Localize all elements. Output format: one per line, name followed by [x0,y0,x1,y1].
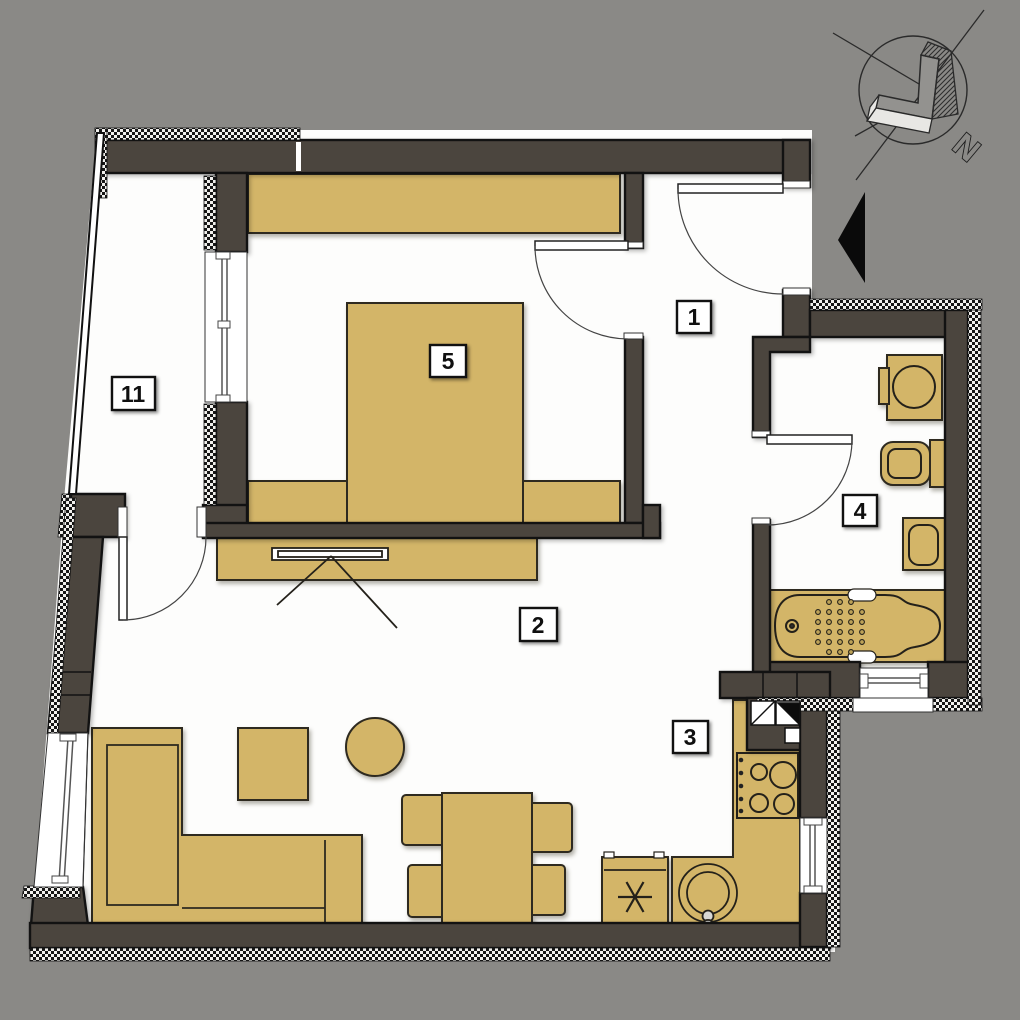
wall-kitchen-right-upper [800,698,827,818]
wall-kitchen-right-lower [800,893,827,947]
kitchen-window [800,818,827,893]
bathroom-window [853,668,933,712]
toilet-tank [930,440,945,487]
room-number: 4 [854,498,867,524]
bedroom-door-leaf [535,241,628,250]
wall-bedroom-right-upper [625,173,643,248]
wall-bottom [30,923,830,948]
room-number: 11 [121,381,146,407]
wall-bathroom-left-lower [753,520,770,672]
bathtub-grip [848,589,876,601]
wall-joint-slit [296,142,301,171]
nightstand-right [523,481,620,523]
wall-bedroom-bottom [203,523,660,538]
washing-machine [887,355,942,420]
room-label-hallway: 1 [677,301,711,333]
fridge-hinge [654,852,664,858]
room-label-living-room: 2 [520,608,557,641]
north-label: N [946,126,987,168]
floor-plan: 1 2 3 4 5 11 N [0,0,1020,1020]
nightstand-left [248,481,347,523]
floor-plan-canvas: 1 2 3 4 5 11 N [0,0,1020,1020]
living-room-window [34,733,88,887]
round-table [346,718,404,776]
wall-bedroom-right-lower [625,337,643,523]
bathroom-door-leaf [767,435,852,444]
wardrobe [248,174,620,233]
washer-drawer [879,368,889,404]
bedroom-window [205,252,247,402]
room-number: 5 [442,348,455,374]
wall-bathroom-right [945,310,968,700]
room-number: 2 [532,612,545,638]
double-bed [347,303,523,523]
room-number: 3 [684,724,697,750]
room-label-balcony: 11 [112,377,155,410]
room-number: 1 [688,304,701,330]
wall-top [100,140,810,173]
wall-balcony-bedroom-upper [216,173,247,252]
entrance-arrow-icon [838,192,865,283]
room-label-kitchen: 3 [673,721,708,753]
wall-kitchen-top [720,672,830,698]
entrance-door-leaf [678,184,783,193]
balcony-door-leaf [119,537,127,620]
room-label-bedroom: 5 [430,345,466,377]
wall-corner-block [643,505,660,538]
fridge-hinge [604,852,614,858]
fridge-freezer [602,857,668,925]
wall-entrance-top [783,140,810,187]
wall-entrance-bottom [783,290,810,337]
north-arrow-icon: N [833,10,987,180]
wall-bathroom-bottom-right [928,662,968,698]
room-label-bathroom: 4 [843,495,877,526]
side-table [238,728,308,800]
dining-table [442,793,532,925]
